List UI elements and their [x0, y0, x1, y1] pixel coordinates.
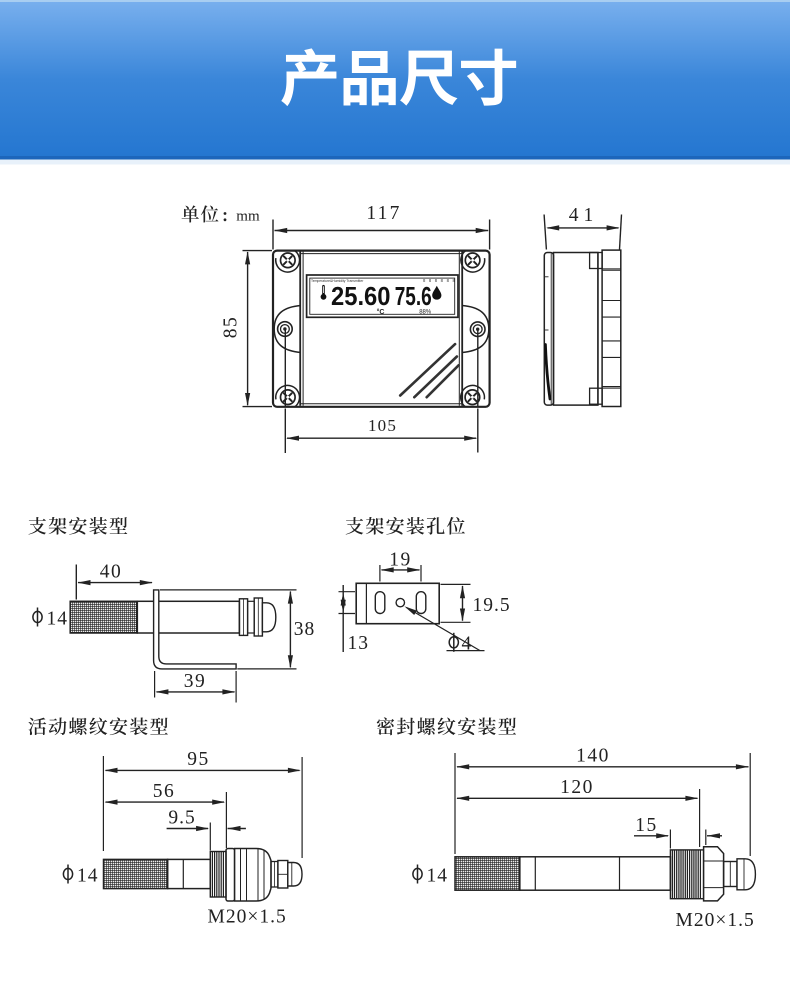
svg-text:25.60: 25.60	[331, 281, 391, 311]
svg-text:14: 14	[47, 609, 69, 630]
svg-text:°C: °C	[377, 308, 385, 316]
svg-text:M20×1.5: M20×1.5	[208, 907, 287, 928]
svg-text:14: 14	[427, 866, 449, 887]
svg-text:88%: 88%	[419, 310, 432, 316]
svg-text:mm: mm	[236, 208, 260, 224]
svg-text:15: 15	[635, 815, 658, 836]
svg-text:40: 40	[100, 562, 123, 583]
svg-text:120: 120	[560, 777, 594, 798]
svg-text:4: 4	[462, 633, 472, 654]
svg-text:140: 140	[576, 746, 610, 767]
svg-text:19: 19	[389, 550, 412, 571]
svg-text:19.5: 19.5	[473, 595, 511, 616]
svg-text:56: 56	[153, 781, 176, 802]
svg-text:85: 85	[221, 316, 242, 339]
svg-text:9.5: 9.5	[168, 807, 195, 828]
svg-text:117: 117	[366, 203, 401, 224]
svg-text:38: 38	[294, 619, 316, 640]
svg-text:14: 14	[77, 866, 99, 887]
svg-text:41: 41	[569, 205, 599, 226]
svg-text:39: 39	[184, 671, 207, 692]
svg-text:M20×1.5: M20×1.5	[676, 910, 755, 931]
svg-text:75.6: 75.6	[395, 281, 432, 311]
svg-text:13: 13	[348, 633, 370, 654]
svg-text:105: 105	[368, 416, 397, 435]
svg-text:95: 95	[187, 749, 210, 770]
